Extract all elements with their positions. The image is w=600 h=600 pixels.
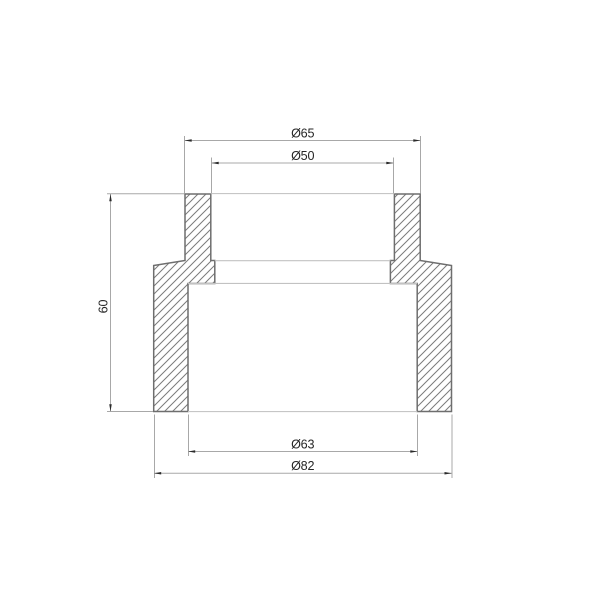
svg-text:Ø50: Ø50 bbox=[291, 149, 314, 163]
svg-text:60: 60 bbox=[97, 300, 111, 314]
svg-text:Ø65: Ø65 bbox=[291, 126, 314, 140]
svg-text:Ø63: Ø63 bbox=[291, 437, 314, 451]
svg-text:Ø82: Ø82 bbox=[291, 459, 314, 473]
